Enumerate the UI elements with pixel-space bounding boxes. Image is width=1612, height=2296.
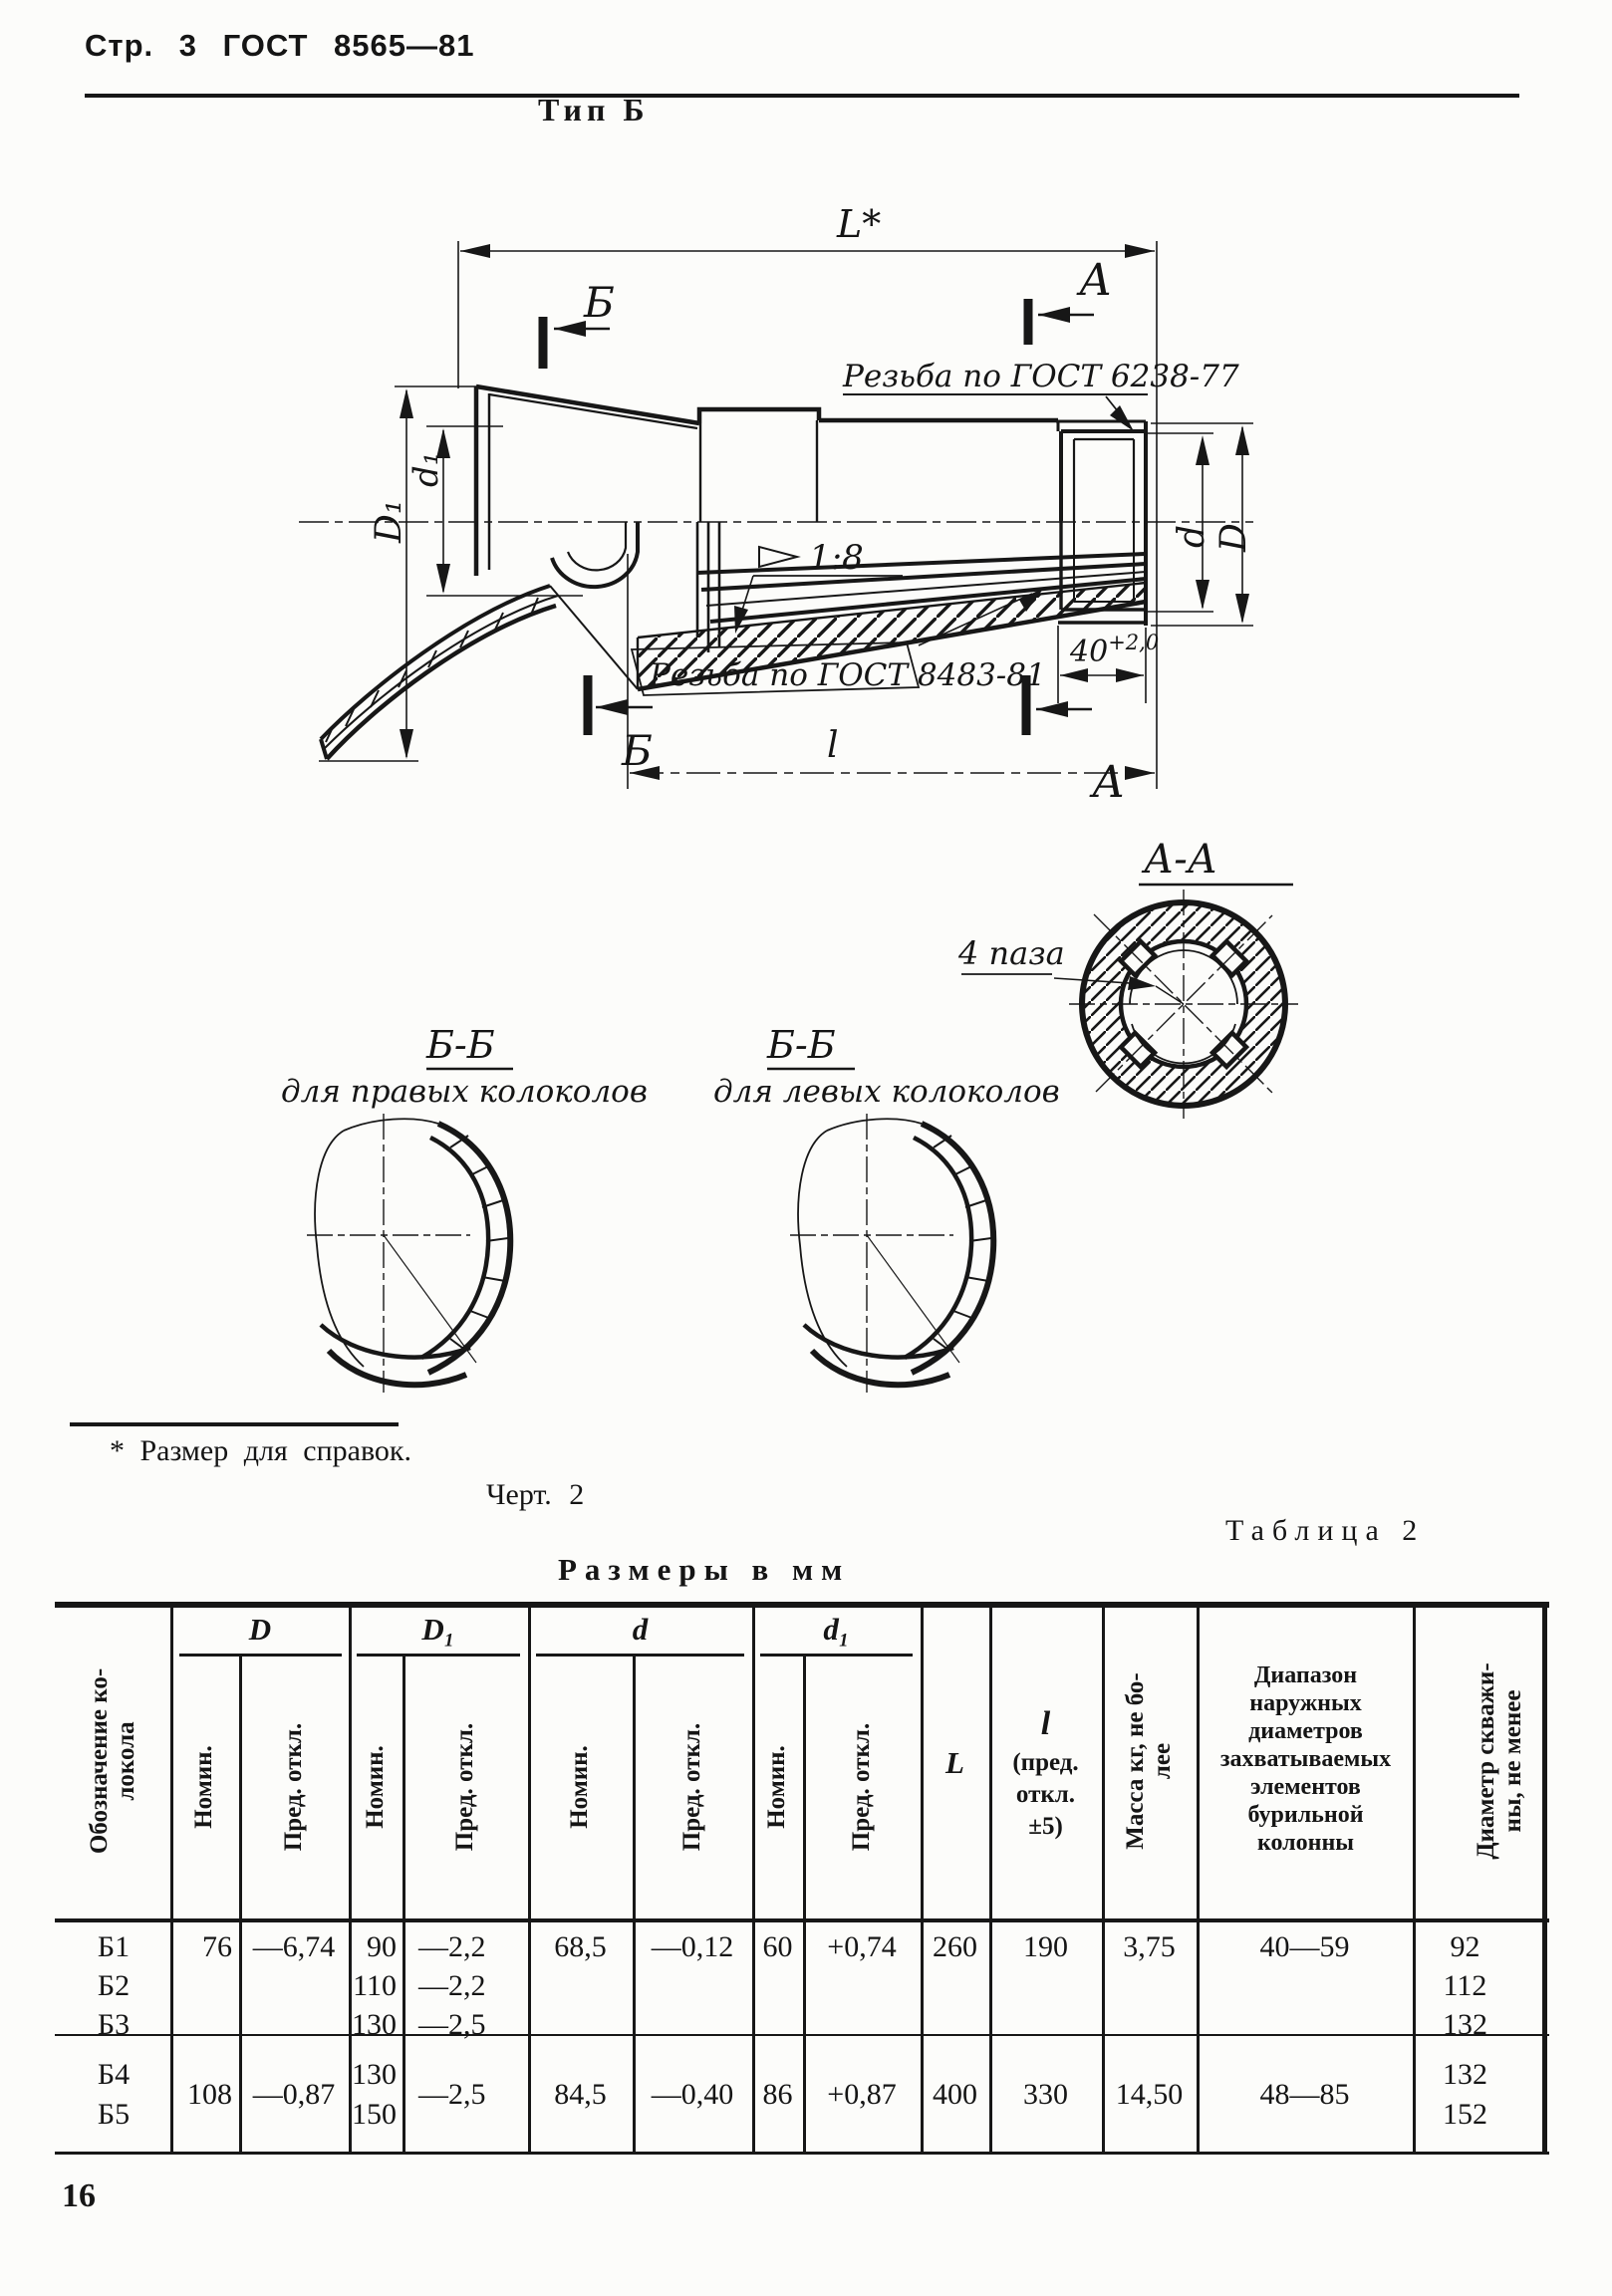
value-D1-dev: —2,2	[418, 1969, 528, 2003]
col-header-bore: Диаметр скважи- ны, не менее	[1473, 1602, 1526, 1920]
value-d-nom: 68,5	[528, 1930, 633, 1964]
col-header-dev: Пред. откл.	[848, 1687, 876, 1887]
col-header-D: D	[170, 1612, 350, 1648]
col-header-l-note: откл.	[989, 1781, 1102, 1809]
value-bore: 112	[1413, 1969, 1517, 2003]
value-d1-nom: 86	[752, 2078, 803, 2112]
col-header-L: L	[921, 1745, 989, 1781]
row-designation: Б5	[60, 2098, 167, 2132]
row-designation: Б1	[60, 1930, 167, 1964]
value-mass: 3,75	[1102, 1930, 1197, 1964]
col-header-D1: D₁	[349, 1612, 528, 1648]
table-top-rule	[55, 1602, 1549, 1608]
table-headrule	[55, 1918, 1549, 1922]
value-bore: 132	[1413, 2058, 1517, 2092]
value-bore: 152	[1413, 2098, 1517, 2132]
col-header-mass: Масса кг, не бо- лее	[1122, 1602, 1176, 1920]
value-D-nom: 76	[170, 1930, 232, 1964]
row-designation: Б3	[60, 2008, 167, 2042]
value-l: 330	[989, 2078, 1102, 2112]
dimensions-table: Обозначение ко- локола D D₁ d d₁ Номин. …	[0, 0, 1612, 2296]
value-D1-nom: 130	[349, 2058, 397, 2092]
value-D1-dev: —2,5	[418, 2008, 528, 2042]
value-bore: 132	[1413, 2008, 1517, 2042]
subcol-line	[403, 1654, 405, 2155]
col-line	[528, 1602, 531, 2155]
col-header-dev: Пред. откл.	[678, 1687, 706, 1887]
value-D-nom: 108	[170, 2078, 232, 2112]
value-d-dev: —0,12	[633, 1930, 752, 1964]
col-header-dev: Пред. откл.	[280, 1687, 308, 1887]
col-header-l-note: ±5)	[989, 1813, 1102, 1841]
col-header-d: d	[528, 1612, 752, 1648]
value-D1-nom: 110	[349, 1969, 397, 2003]
col-header-nom: Номин.	[190, 1687, 218, 1887]
group-underline-D	[179, 1654, 342, 1657]
row-designation: Б4	[60, 2058, 167, 2092]
value-d-dev: —0,40	[633, 2078, 752, 2112]
col-line	[1102, 1602, 1105, 2155]
col-header-d1: d₁	[752, 1612, 921, 1648]
value-L: 260	[921, 1930, 989, 1964]
value-D-dev: —0,87	[239, 2078, 349, 2112]
page-number: 16	[62, 2177, 96, 2215]
col-header-l: l	[989, 1705, 1102, 1743]
col-header-designation: Обозначение ко- локола	[86, 1602, 139, 1920]
value-d1-dev: +0,87	[803, 2078, 921, 2112]
group-underline-d1	[760, 1654, 913, 1657]
value-range: 48—85	[1197, 2078, 1413, 2112]
value-D1-dev: —2,2	[418, 1930, 528, 1964]
value-D1-nom: 130	[349, 2008, 397, 2042]
group-underline-D1	[357, 1654, 520, 1657]
table-midrule	[55, 2034, 1549, 2036]
col-header-nom: Номин.	[362, 1687, 390, 1887]
value-D-dev: —6,74	[239, 1930, 349, 1964]
value-mass: 14,50	[1102, 2078, 1197, 2112]
value-d-nom: 84,5	[528, 2078, 633, 2112]
value-D1-nom: 150	[349, 2098, 397, 2132]
value-range: 40—59	[1197, 1930, 1413, 1964]
col-line	[921, 1602, 924, 2155]
col-header-range: Диапазон наружных диаметров захватываемы…	[1199, 1661, 1413, 1857]
col-header-l-note: (пред.	[989, 1749, 1102, 1777]
table-bottom-rule	[55, 2152, 1549, 2155]
document-page: Стр. 3 ГОСТ 8565—81 Тип Б	[0, 0, 1612, 2296]
col-header-nom: Номин.	[763, 1687, 791, 1887]
col-line	[752, 1602, 755, 2155]
value-l: 190	[989, 1930, 1102, 1964]
value-D1-dev: —2,5	[418, 2078, 528, 2112]
col-header-dev: Пред. откл.	[451, 1687, 479, 1887]
value-D1-nom: 90	[349, 1930, 397, 1964]
value-L: 400	[921, 2078, 989, 2112]
col-header-nom: Номин.	[566, 1687, 594, 1887]
value-d1-nom: 60	[752, 1930, 803, 1964]
group-underline-d	[536, 1654, 744, 1657]
value-d1-dev: +0,74	[803, 1930, 921, 1964]
table-right-border	[1542, 1602, 1547, 2155]
col-line	[170, 1602, 173, 2155]
row-designation: Б2	[60, 1969, 167, 2003]
col-line	[989, 1602, 992, 2155]
value-bore: 92	[1413, 1930, 1517, 1964]
